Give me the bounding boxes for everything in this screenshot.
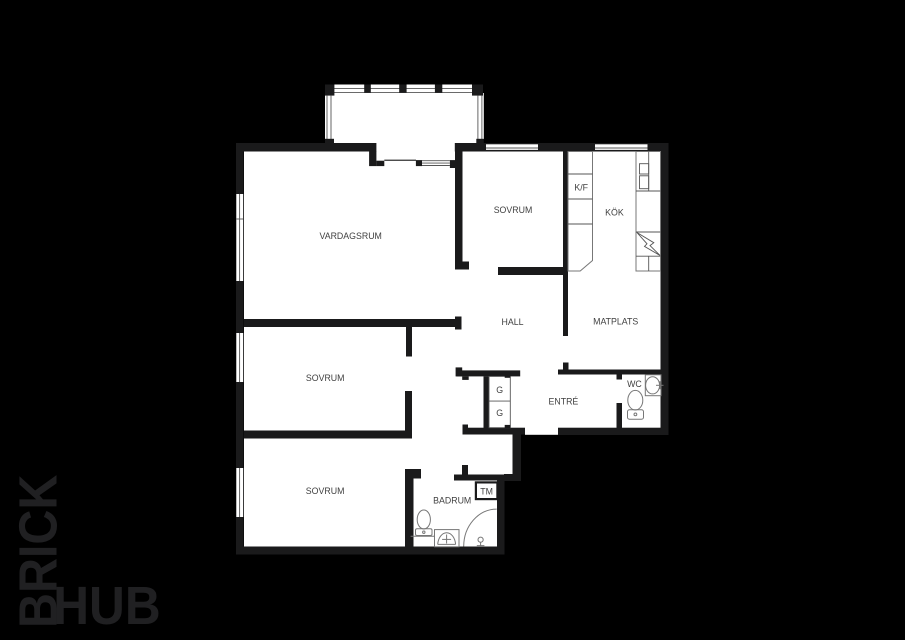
- svg-text:SOVRUM: SOVRUM: [494, 205, 533, 215]
- svg-text:K/F: K/F: [574, 183, 588, 193]
- svg-text:ENTRÉ: ENTRÉ: [548, 396, 578, 406]
- svg-text:SOVRUM: SOVRUM: [306, 373, 345, 383]
- svg-text:G: G: [496, 408, 503, 418]
- svg-text:MATPLATS: MATPLATS: [593, 316, 638, 326]
- svg-text:WC: WC: [627, 379, 642, 389]
- svg-text:KÖK: KÖK: [605, 207, 624, 217]
- svg-text:SOVRUM: SOVRUM: [306, 486, 345, 496]
- svg-text:VARDAGSRUM: VARDAGSRUM: [319, 231, 381, 241]
- svg-text:HALL: HALL: [501, 317, 523, 327]
- svg-text:G: G: [496, 385, 503, 395]
- svg-text:BADRUM: BADRUM: [433, 495, 471, 505]
- svg-text:HUB: HUB: [53, 575, 160, 635]
- svg-text:TM: TM: [480, 486, 493, 496]
